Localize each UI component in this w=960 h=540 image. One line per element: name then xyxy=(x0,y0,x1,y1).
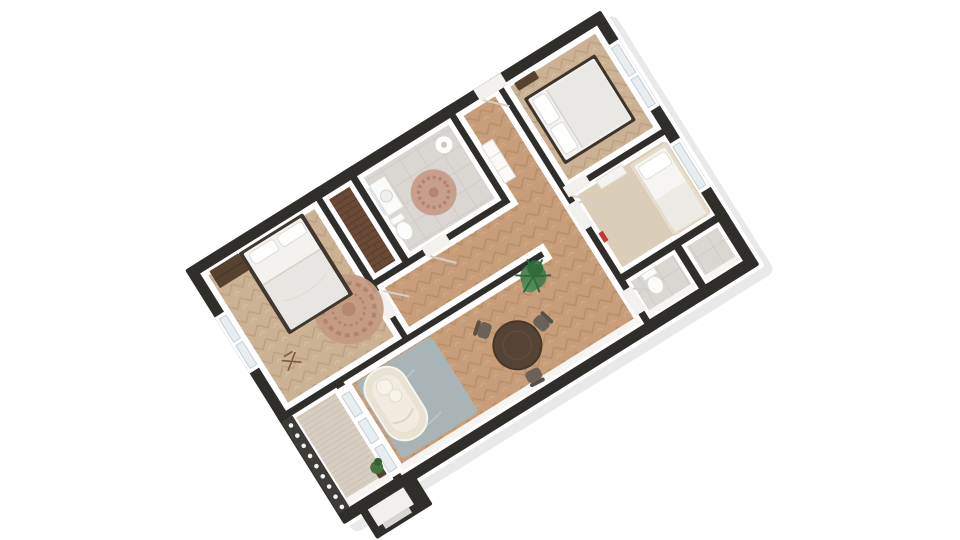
floorplan-stage xyxy=(0,0,960,540)
floorplan-group xyxy=(179,2,783,540)
floorplan-svg xyxy=(0,0,960,540)
